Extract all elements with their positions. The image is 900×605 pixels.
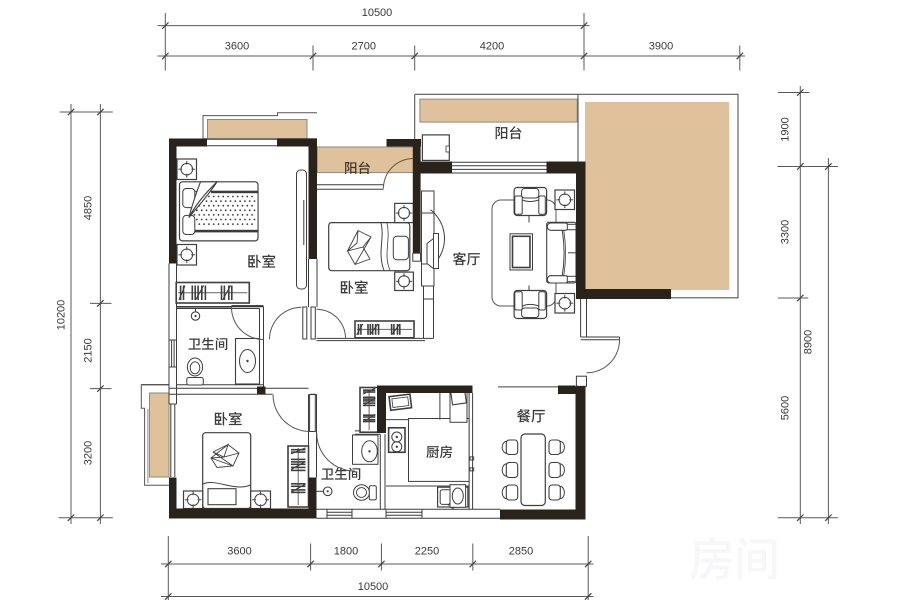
svg-text:1900: 1900	[779, 117, 791, 141]
svg-text:1800: 1800	[334, 546, 358, 558]
svg-text:8900: 8900	[802, 330, 814, 354]
svg-text:4200: 4200	[480, 41, 504, 53]
svg-text:3600: 3600	[227, 546, 251, 558]
svg-text:3900: 3900	[649, 41, 673, 53]
svg-text:5600: 5600	[779, 396, 791, 420]
svg-text:3600: 3600	[225, 41, 249, 53]
svg-text:10500: 10500	[358, 581, 389, 593]
svg-text:10200: 10200	[55, 300, 67, 331]
svg-text:10500: 10500	[362, 7, 393, 19]
svg-text:4850: 4850	[82, 196, 94, 220]
svg-text:2850: 2850	[509, 546, 533, 558]
svg-text:3300: 3300	[779, 220, 791, 244]
svg-text:2700: 2700	[352, 41, 376, 53]
svg-text:2250: 2250	[415, 546, 439, 558]
svg-text:2150: 2150	[82, 338, 94, 362]
svg-text:3200: 3200	[82, 441, 94, 465]
